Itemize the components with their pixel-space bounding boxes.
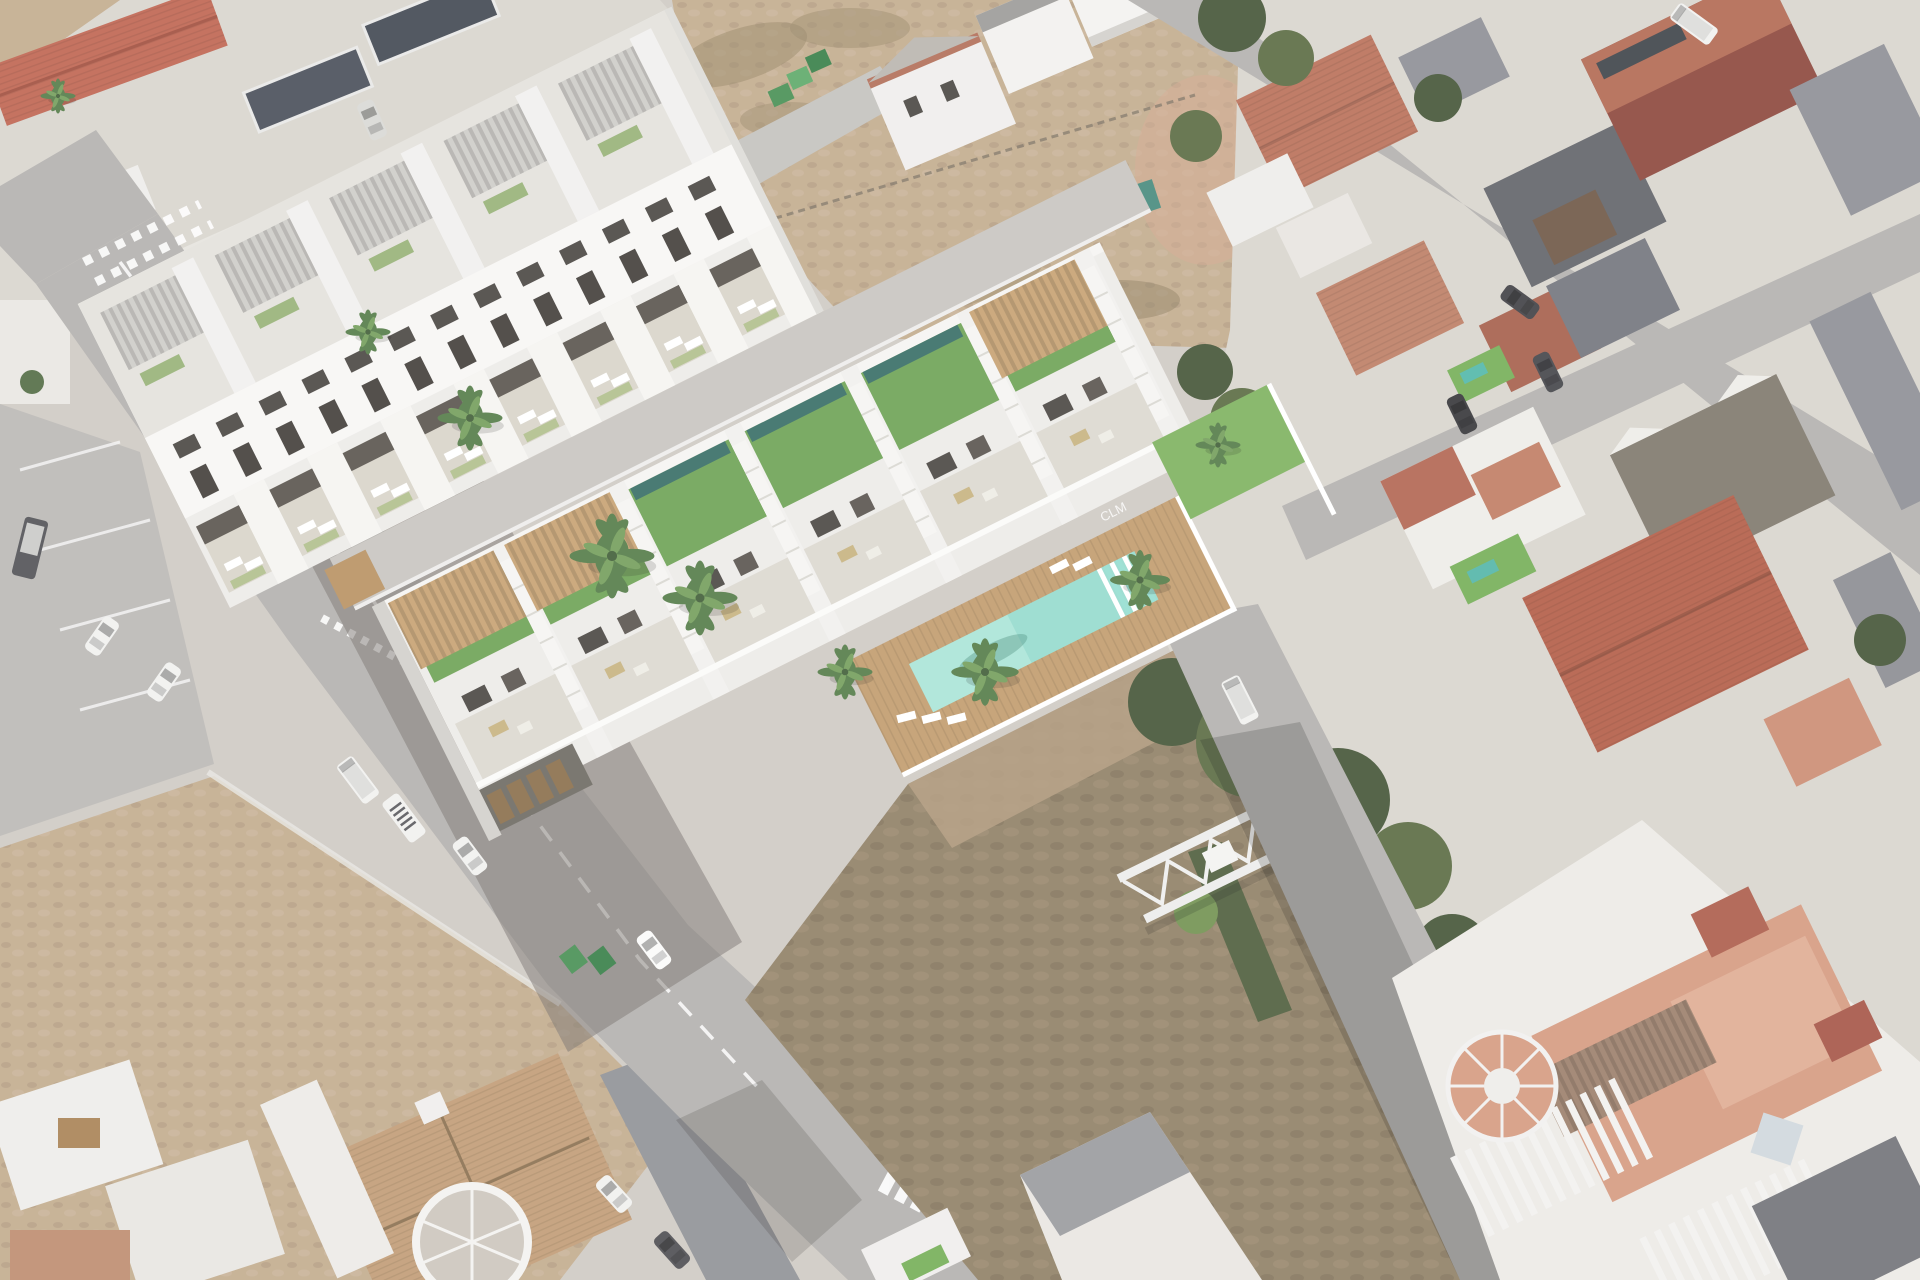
aerial-photo: CLM bbox=[0, 0, 1920, 1280]
atmosphere bbox=[0, 0, 1920, 1280]
